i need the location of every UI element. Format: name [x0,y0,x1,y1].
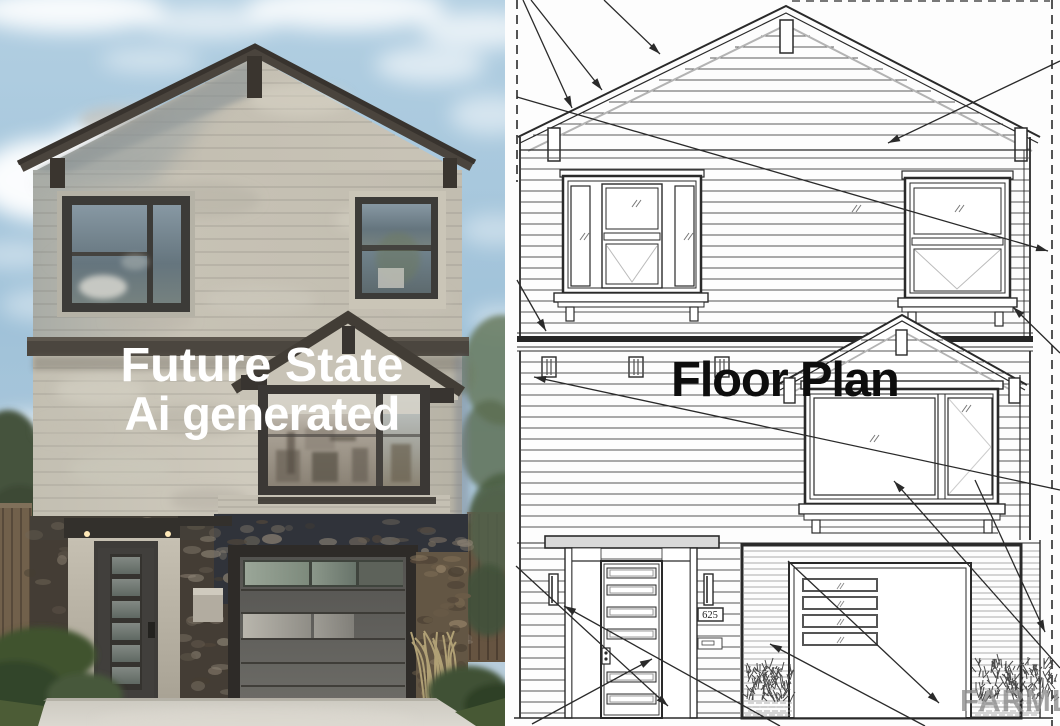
svg-text:Floor Plan: Floor Plan [671,353,899,407]
svg-text:625: 625 [702,610,718,621]
svg-text:FARMLS: FARMLS [960,683,1060,718]
svg-text:Ai generated: Ai generated [124,387,399,440]
svg-text:Future State: Future State [121,338,404,392]
